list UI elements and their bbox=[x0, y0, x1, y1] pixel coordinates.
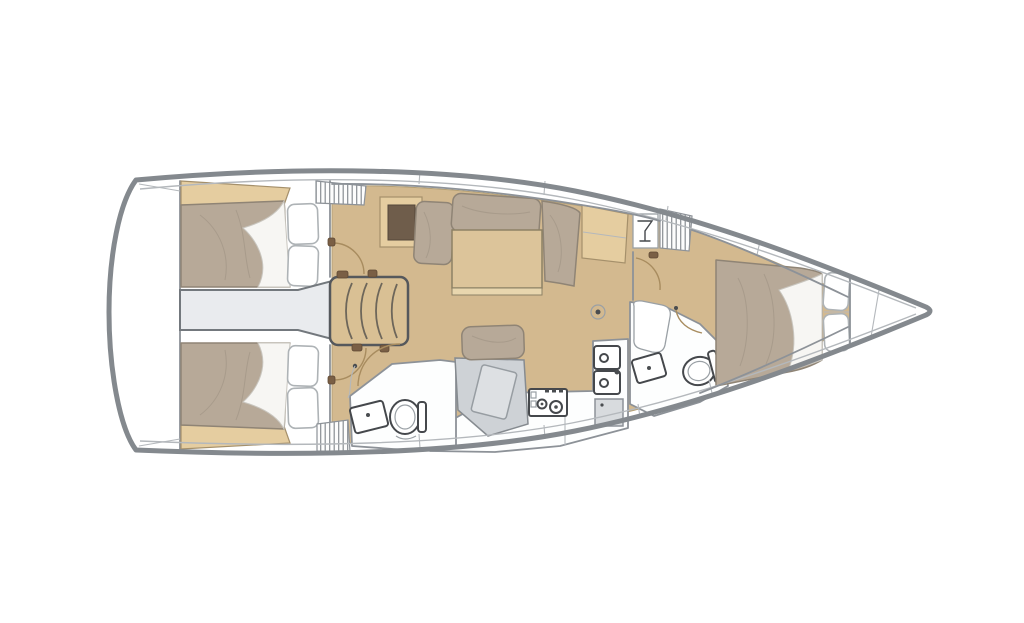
settee-cushion bbox=[413, 201, 454, 265]
handrail-fitting bbox=[337, 271, 348, 278]
pillow bbox=[287, 345, 318, 386]
nav-seat-cushion bbox=[461, 325, 524, 360]
salon-table bbox=[452, 230, 542, 288]
pillow bbox=[287, 387, 318, 428]
cabinet-inset bbox=[388, 205, 415, 240]
handrail-fitting bbox=[368, 270, 377, 277]
forward-cabin bbox=[716, 260, 850, 386]
shower-molding bbox=[634, 301, 671, 353]
pillow bbox=[287, 203, 318, 244]
door-handle bbox=[328, 238, 335, 246]
pillow bbox=[287, 245, 318, 286]
engine-compartment bbox=[180, 281, 332, 339]
hanging-locker bbox=[317, 420, 350, 452]
sideboard bbox=[582, 205, 628, 263]
floorplan-canvas bbox=[0, 0, 1024, 623]
faucet bbox=[615, 370, 620, 375]
door-handle bbox=[328, 376, 335, 384]
toilet-tank bbox=[418, 402, 426, 432]
handrail-fitting bbox=[352, 344, 362, 351]
salon-table-lip bbox=[452, 288, 542, 295]
companionway-steps bbox=[330, 270, 408, 352]
door-handle bbox=[649, 252, 658, 258]
yacht-floorplan bbox=[0, 0, 1024, 623]
